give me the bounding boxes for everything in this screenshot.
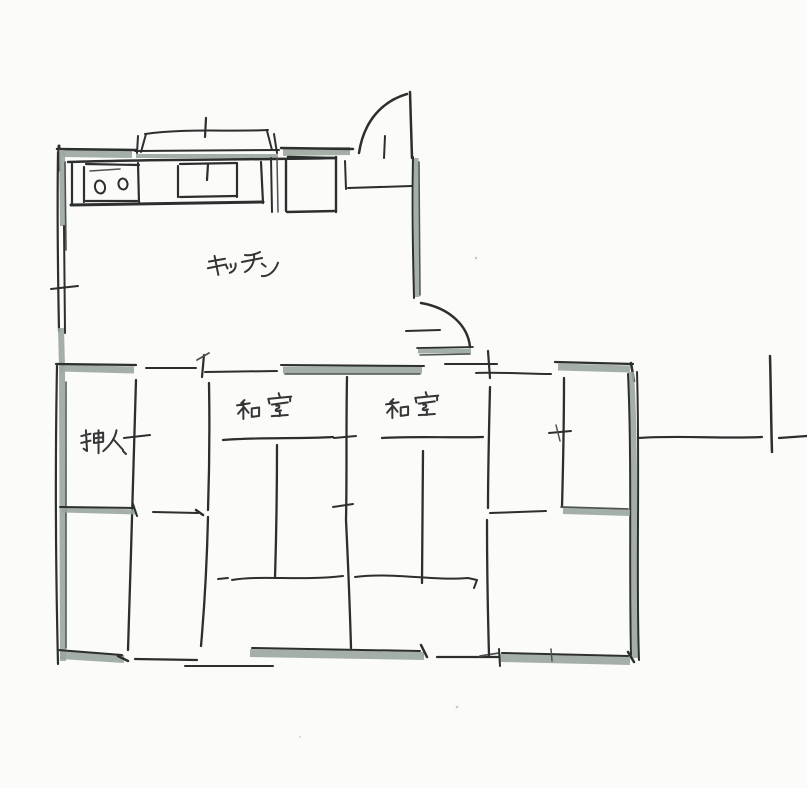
- swing-door-icon: [359, 92, 412, 158]
- swing-door-icon: [406, 303, 473, 355]
- burner-circle: [94, 180, 106, 195]
- scan-specks: [299, 257, 477, 738]
- washitsu-1-label: 和室: [236, 398, 288, 428]
- lower-left-wall: [56, 366, 66, 664]
- entry-step: [345, 161, 412, 189]
- lower-top-wall: [56, 351, 634, 381]
- appliance-square-icon: [286, 157, 336, 212]
- kitchen-left-wall: [51, 150, 78, 368]
- two-burner-stove-icon: [84, 163, 139, 203]
- kitchen-label: キッチン: [204, 256, 316, 289]
- kitchen-right-wall: [413, 157, 420, 298]
- burner-circle: [118, 178, 129, 190]
- kitchen-counter: [68, 158, 336, 212]
- kitchen-window-icon: [141, 118, 272, 152]
- interior-partitions: [128, 377, 564, 655]
- lower-right-wall: [628, 372, 639, 660]
- right-extension-line: [638, 356, 807, 452]
- washitsu-2-label: 和室: [385, 397, 437, 427]
- floor-plan-canvas: キッチン 和室 和室: [0, 0, 807, 788]
- closet-label: 押入: [79, 432, 131, 462]
- floor-plan-sketch: キッチン 和室 和室: [0, 0, 807, 788]
- kitchen-sink-icon: [178, 163, 237, 197]
- lower-bottom-wall: [58, 645, 634, 666]
- kitchen-room: [51, 92, 473, 368]
- room-labels: キッチン 和室 和室: [79, 252, 438, 462]
